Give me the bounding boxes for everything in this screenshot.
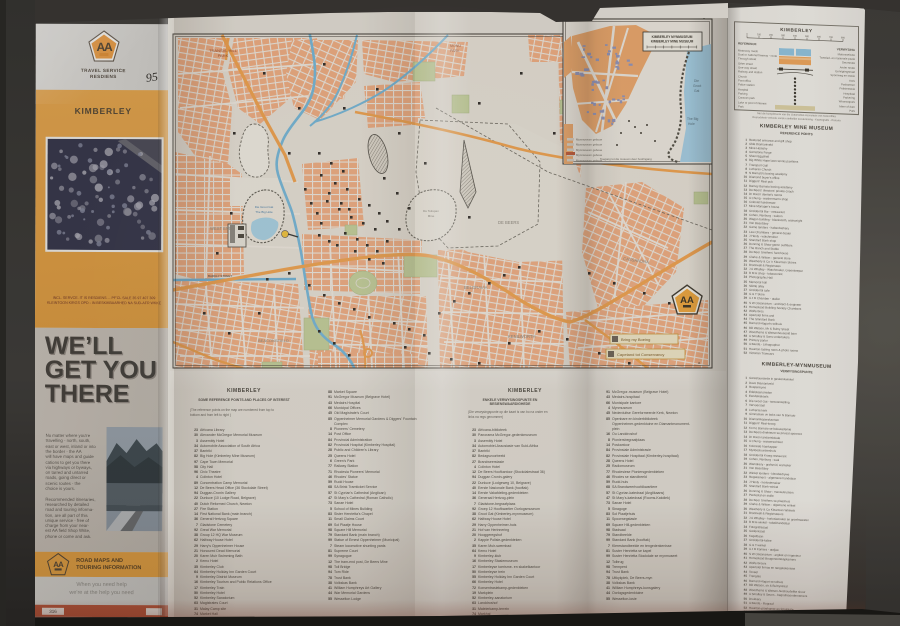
svg-text:0: 0	[746, 33, 748, 36]
svg-text:Mynmuseum geboue: Mynmuseum geboue	[576, 148, 603, 152]
svg-text:The Big: The Big	[687, 117, 699, 121]
svg-text:KENILWORTH: KENILWORTH	[508, 334, 536, 339]
svg-text:400: 400	[793, 35, 798, 38]
svg-text:Mynmuseum geboue: Mynmuseum geboue	[576, 153, 603, 157]
svg-text:BEACONSFIELD: BEACONSFIELD	[258, 338, 289, 343]
svg-text:PARK: PARK	[450, 49, 460, 53]
svg-text:KIMBERLEY MYNMUSEUM: KIMBERLEY MYNMUSEUM	[652, 35, 693, 39]
svg-text:The Big Hole: The Big Hole	[255, 210, 273, 214]
svg-text:100: 100	[757, 33, 762, 36]
svg-text:Mynmuseum geboue: Mynmuseum geboue	[576, 138, 603, 142]
svg-text:DE BEERS: DE BEERS	[498, 220, 519, 225]
svg-text:300: 300	[781, 34, 786, 37]
svg-text:Toegang tot die museum deur ho: Toegang tot die museum deur hoofingang	[600, 157, 652, 161]
svg-text:800: 800	[841, 36, 846, 39]
svg-text:KIMBERLEY MINE MUSEUM: KIMBERLEY MINE MUSEUM	[651, 40, 694, 44]
svg-text:MONU: MONU	[450, 44, 461, 48]
svg-text:Groot: Groot	[693, 84, 701, 88]
svg-text:Die: Die	[694, 79, 699, 83]
svg-text:Capetand tot Conservancy: Capetand tot Conservancy	[617, 352, 664, 357]
svg-text:Die Groot Gat: Die Groot Gat	[255, 205, 274, 209]
svg-text:AA: AA	[96, 40, 113, 54]
svg-text:Mine: Mine	[428, 214, 435, 218]
svg-text:700: 700	[829, 36, 834, 39]
svg-text:a: a	[698, 361, 700, 365]
svg-text:WEST END: WEST END	[210, 226, 232, 231]
svg-text:Mynmuseum geboue: Mynmuseum geboue	[576, 143, 603, 147]
svg-text:Bring my Boeing: Bring my Boeing	[621, 337, 650, 342]
svg-text:Mynmuseum geboue: Mynmuseum geboue	[576, 158, 603, 162]
svg-text:600: 600	[817, 35, 822, 38]
svg-text:Du Toitspan: Du Toitspan	[423, 209, 439, 213]
svg-text:PARK: PARK	[218, 53, 229, 58]
svg-text:BARKLY STREET: BARKLY STREET	[208, 274, 232, 278]
svg-text:200: 200	[769, 34, 774, 37]
svg-text:Gat: Gat	[694, 89, 699, 93]
svg-text:500: 500	[805, 35, 810, 38]
svg-text:AA: AA	[680, 295, 694, 306]
svg-text:Hole: Hole	[688, 122, 695, 126]
svg-text:AA: AA	[53, 560, 64, 569]
svg-text:BELGRAVIA: BELGRAVIA	[464, 285, 488, 290]
